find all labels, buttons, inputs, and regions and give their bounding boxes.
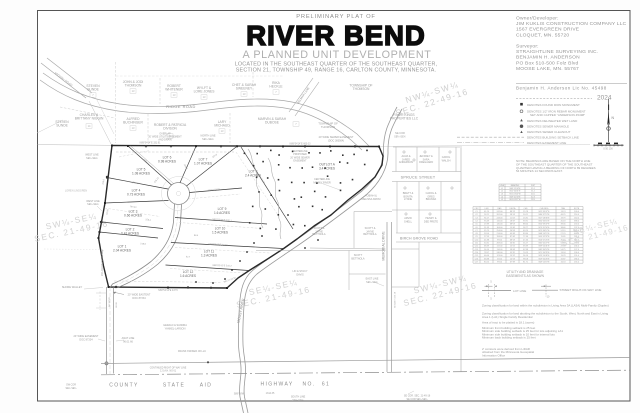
svg-text:MELISSA KROM: MELISSA KROM <box>362 198 381 201</box>
svg-text:2024: 2024 <box>597 95 612 102</box>
svg-text:0.73 ACRES: 0.73 ACRES <box>127 193 145 197</box>
svg-text:PROPOSED: PROPOSED <box>293 153 307 156</box>
svg-text:58°44': 58°44' <box>510 249 516 251</box>
svg-text:CENTERLINE: CENTERLINE <box>314 178 330 181</box>
svg-text:15°46': 15°46' <box>510 227 516 229</box>
svg-text:SET AND CAPPED "ANDERSON 45498: SET AND CAPPED "ANDERSON 45498" <box>530 113 585 117</box>
svg-text:N65°45'27"E: N65°45'27"E <box>539 243 550 245</box>
svg-text:DUBOSE: DUBOSE <box>265 120 280 124</box>
svg-text:Zoning classification for land: Zoning classification for land within th… <box>482 304 609 308</box>
svg-text:Area 1 (LA1) Single Family Res: Area 1 (LA1) Single Family Residential <box>482 315 533 319</box>
svg-text:78.97: 78.97 <box>484 252 489 254</box>
svg-text:N71°50'35"E: N71°50'35"E <box>539 252 550 254</box>
svg-text:61: 61 <box>322 382 330 388</box>
svg-text:1314.35: 1314.35 <box>266 392 275 395</box>
svg-text:TOBIAH &: TOBIAH & <box>365 195 377 198</box>
svg-text:PROPERTIES LLC: PROPERTIES LLC <box>390 116 419 120</box>
svg-text:BETTNOLA: BETTNOLA <box>312 233 326 236</box>
svg-text:44.0: 44.0 <box>531 194 535 196</box>
svg-text:51.2: 51.2 <box>531 191 535 193</box>
svg-text:SE¼-SE¼: SE¼-SE¼ <box>366 281 379 284</box>
svg-text:C6: C6 <box>475 227 477 229</box>
svg-text:N59°52'32"E: N59°52'32"E <box>539 236 550 238</box>
svg-text:66.88: 66.88 <box>484 258 489 260</box>
svg-text:56°45': 56°45' <box>510 243 516 245</box>
svg-text:0.66 ACRES: 0.66 ACRES <box>124 214 142 218</box>
svg-text:C2: C2 <box>475 214 477 216</box>
svg-text:160.0: 160.0 <box>574 217 579 219</box>
svg-text:LYNNE: LYNNE <box>404 198 412 201</box>
svg-text:DEE PRETE: DEE PRETE <box>424 220 439 223</box>
svg-text:14°23': 14°23' <box>510 258 516 260</box>
svg-text:99.00: 99.00 <box>497 239 502 241</box>
svg-text:39.56: 39.56 <box>561 224 566 226</box>
svg-text:0.41 ACRES: 0.41 ACRES <box>121 232 139 236</box>
svg-text:132.00: 132.00 <box>497 220 503 222</box>
svg-text:269.00: 269.00 <box>497 243 503 245</box>
svg-text:46.25: 46.25 <box>561 214 566 216</box>
svg-text:19°31': 19°31' <box>510 255 516 257</box>
svg-text:HECKLE: HECKLE <box>269 84 283 88</box>
svg-text:145.00: 145.00 <box>497 224 503 226</box>
svg-text:93.49: 93.49 <box>484 220 489 222</box>
svg-text:N22°33'47"E: N22°33'47"E <box>539 211 550 213</box>
svg-text:LOT 6: LOT 6 <box>163 156 172 160</box>
svg-text:18°47': 18°47' <box>510 220 516 222</box>
svg-text:SHELL: SHELL <box>404 220 413 223</box>
svg-text:49°48': 49°48' <box>510 233 516 235</box>
svg-text:NE COR: NE COR <box>395 132 405 135</box>
svg-text:24.21: 24.21 <box>484 214 489 216</box>
svg-text:68°53': 68°53' <box>510 224 516 226</box>
svg-text:62.3: 62.3 <box>531 196 535 198</box>
svg-text:C15: C15 <box>475 255 478 257</box>
svg-text:39.39: 39.39 <box>523 246 528 248</box>
svg-text:28.9: 28.9 <box>531 199 535 201</box>
svg-text:96.16: 96.16 <box>523 255 528 257</box>
svg-text:HIGHWAY: HIGHWAY <box>260 382 293 388</box>
svg-text:13.34: 13.34 <box>561 252 566 254</box>
svg-text:OUTLOT A: OUTLOT A <box>319 163 336 167</box>
svg-text:235.0: 235.0 <box>574 261 579 263</box>
svg-text:55.27: 55.27 <box>523 243 528 245</box>
svg-text:N89°54'14"E 331.91: N89°54'14"E 331.91 <box>140 143 161 145</box>
svg-text:N26°57'25"E: N26°57'25"E <box>539 239 550 241</box>
svg-text:N39°10'41"E: N39°10'41"E <box>539 246 550 248</box>
svg-text:13: 13 <box>404 188 406 190</box>
svg-text:1.07 ACRES: 1.07 ACRES <box>194 162 212 166</box>
svg-text:BUCHINGER: BUCHINGER <box>123 120 143 124</box>
svg-text:LIN & STACY: LIN & STACY <box>292 270 307 273</box>
svg-text:WALSH: WALSH <box>442 159 451 162</box>
svg-text:234.0: 234.0 <box>574 246 579 248</box>
svg-text:98.58: 98.58 <box>523 258 528 260</box>
svg-text:0 50 100: 0 50 100 <box>603 148 613 151</box>
svg-text:ANDERSON: ANDERSON <box>399 161 413 164</box>
svg-text:THOMSON: THOMSON <box>125 83 142 87</box>
svg-text:STATE: STATE <box>163 383 185 389</box>
svg-text:CHD: CHD <box>523 208 528 210</box>
svg-text:HENRY &: HENRY & <box>425 217 436 220</box>
svg-text:C14: C14 <box>475 252 478 254</box>
svg-text:(DOC 383564): (DOC 383564) <box>328 139 344 142</box>
svg-text:3.4 ACRES: 3.4 ACRES <box>319 167 335 171</box>
svg-text:70.23: 70.23 <box>523 252 528 254</box>
svg-text:N49°15'19"E: N49°15'19"E <box>539 261 550 263</box>
svg-text:S81°03'27"W: S81°03'27"W <box>509 199 520 201</box>
svg-text:L1: L1 <box>501 188 503 190</box>
svg-text:50.21: 50.21 <box>523 214 528 216</box>
svg-text:2.04 ACRES: 2.04 ACRES <box>113 249 131 253</box>
svg-text:LOT LINE: LOT LINE <box>513 289 526 293</box>
svg-text:N29°50'26"E: N29°50'26"E <box>539 258 550 260</box>
svg-text:1567 EVERGREEN DRIVE: 1567 EVERGREEN DRIVE <box>516 27 580 33</box>
svg-text:LOT 1: LOT 1 <box>118 245 127 249</box>
svg-text:DENOTES SEWER MANHOLE: DENOTES SEWER MANHOLE <box>527 124 569 128</box>
svg-text:13.74: 13.74 <box>561 211 566 213</box>
svg-text:ARVID: ARVID <box>404 217 412 220</box>
svg-text:58.77: 58.77 <box>523 227 528 229</box>
svg-text:LOT 11: LOT 11 <box>204 250 215 254</box>
svg-text:BETTNOLA: BETTNOLA <box>363 233 377 236</box>
svg-text:13: 13 <box>403 152 405 154</box>
svg-text:MOOSE LAKE, MN. 55767: MOOSE LAKE, MN. 55767 <box>516 66 579 72</box>
svg-text:SECTION 21, TOWNSHIP 49, R: SECTION 21, TOWNSHIP 49, RANGE 16, CARLT… <box>236 68 437 74</box>
svg-text:LOT 5: LOT 5 <box>137 168 146 172</box>
svg-text:C13: C13 <box>475 249 478 251</box>
svg-text:20' WIDE EASTENT: 20' WIDE EASTENT <box>128 294 151 297</box>
svg-text:13: 13 <box>451 188 453 190</box>
svg-text:L4: L4 <box>501 196 503 198</box>
svg-text:OVERLAP: OVERLAP <box>159 133 171 136</box>
svg-text:51.33: 51.33 <box>484 227 489 229</box>
svg-text:Minimum back building setback: Minimum back building setback is 25 feet <box>482 336 536 340</box>
svg-text:PO Box 510-500 Folz Blvd: PO Box 510-500 Folz Blvd <box>516 60 579 66</box>
svg-text:SCOTT &: SCOTT & <box>365 227 376 230</box>
svg-text:DENOTES BUILDING SETBACK LINE: DENOTES BUILDING SETBACK LINE <box>527 136 579 140</box>
svg-text:0.98 ACRES: 0.98 ACRES <box>158 160 176 164</box>
svg-text:54.75: 54.75 <box>561 249 566 251</box>
svg-text:SE COR SE¼-SE¼: SE COR SE¼-SE¼ <box>407 398 429 401</box>
svg-text:Information Office: Information Office <box>482 353 505 357</box>
svg-text:N09°41'33"E: N09°41'33"E <box>510 196 521 198</box>
svg-text:LORE JONES: LORE JONES <box>194 89 216 93</box>
svg-text:35.75: 35.75 <box>484 230 489 232</box>
svg-text:DENOTES FOUND IRON MONUMENT: DENOTES FOUND IRON MONUMENT <box>527 103 580 107</box>
svg-text:27.89: 27.89 <box>484 224 489 226</box>
svg-text:EASEMENT: EASEMENT <box>293 160 307 163</box>
svg-text:UTILITY AND DRAINAGE: UTILITY AND DRAINAGE <box>507 270 544 274</box>
svg-text:19.78: 19.78 <box>561 255 566 257</box>
svg-text:DIVISON: DIVISON <box>163 126 177 130</box>
svg-text:388.0: 388.0 <box>574 220 579 222</box>
svg-text:286.0: 286.0 <box>574 258 579 260</box>
svg-text:87°46': 87°46' <box>510 236 516 238</box>
svg-text:45.18: 45.18 <box>561 220 566 222</box>
svg-text:CAROL: CAROL <box>442 156 451 159</box>
svg-text:117.00: 117.00 <box>497 246 503 248</box>
svg-text:AID: AID <box>200 383 213 389</box>
svg-text:DOC 87334: DOC 87334 <box>79 338 93 341</box>
svg-text:S89°58'W: S89°58'W <box>234 393 245 396</box>
svg-text:SUNDE: SUNDE <box>56 123 68 127</box>
svg-text:LOT 7: LOT 7 <box>199 158 208 162</box>
svg-text:20' WIDE SEWER: 20' WIDE SEWER <box>290 156 310 159</box>
svg-text:53.00: 53.00 <box>497 258 502 260</box>
svg-text:RIDGE ROAD: RIDGE ROAD <box>166 104 196 109</box>
svg-text:15°21': 15°21' <box>510 246 516 248</box>
svg-text:N89°54'14"E 447.5: N89°54'14"E 447.5 <box>158 290 178 292</box>
svg-text:COUNTY: COUNTY <box>109 383 139 389</box>
svg-text:66.00: 66.00 <box>116 301 118 307</box>
svg-text:THOMSON: THOMSON <box>353 87 370 91</box>
svg-text:BRANDA: BRANDA <box>426 198 437 201</box>
svg-text:1.08 ACRES: 1.08 ACRES <box>132 172 150 176</box>
svg-text:Benjamin H. Anderson Lic No. 4: Benjamin H. Anderson Lic No. 45498 <box>516 86 607 91</box>
svg-text:LOT 2: LOT 2 <box>126 228 135 232</box>
svg-text:LINE: LINE <box>500 185 505 187</box>
svg-text:88°13': 88°13' <box>510 211 516 213</box>
svg-text:151.0: 151.0 <box>574 255 579 257</box>
svg-text:80.25: 80.25 <box>484 261 489 263</box>
svg-text:35.1: 35.1 <box>531 188 535 190</box>
svg-text:DENOTES SEWER CLEANOUT: DENOTES SEWER CLEANOUT <box>527 130 571 134</box>
svg-text:SE¼-SE¼: SE¼-SE¼ <box>87 203 100 206</box>
svg-text:81.71: 81.71 <box>523 261 528 263</box>
svg-text:Surveyor:: Surveyor: <box>516 44 539 50</box>
svg-text:L3: L3 <box>501 194 503 196</box>
svg-text:LOT 9: LOT 9 <box>218 207 227 211</box>
svg-text:SE¼-SE¼: SE¼-SE¼ <box>86 157 99 160</box>
svg-text:1.6 ACRES: 1.6 ACRES <box>214 211 230 215</box>
svg-text:SW COR: SW COR <box>66 384 76 387</box>
svg-text:SE COR. SEC. 21-49-16: SE COR. SEC. 21-49-16 <box>404 395 431 398</box>
svg-text:214.00: 214.00 <box>497 233 503 235</box>
svg-text:N72°36'12"E: N72°36'12"E <box>539 230 550 232</box>
svg-text:DOC 87334: DOC 87334 <box>132 297 146 300</box>
svg-text:123.00: 123.00 <box>497 255 503 257</box>
svg-text:WEST LINE: WEST LINE <box>85 154 99 157</box>
svg-text:ODEGAARD: ODEGAARD <box>419 161 434 164</box>
svg-text:ANAT LINE: ANAT LINE <box>122 337 135 340</box>
svg-text:LOT 10: LOT 10 <box>215 227 226 231</box>
svg-text:N82°30'18"E: N82°30'18"E <box>539 249 550 251</box>
svg-text:SE¼ SE¼: SE¼ SE¼ <box>65 387 77 390</box>
svg-text:93.50: 93.50 <box>484 233 489 235</box>
svg-text:N89°54'14"E 663.03: N89°54'14"E 663.03 <box>290 144 311 146</box>
svg-text:SCOTT: SCOTT <box>354 254 363 257</box>
svg-text:127.0: 127.0 <box>574 249 579 251</box>
svg-text:LOT 4: LOT 4 <box>132 189 141 193</box>
svg-text:YANKEL-LARSON: YANKEL-LARSON <box>165 327 186 330</box>
svg-text:BETTNOLA: BETTNOLA <box>351 257 365 260</box>
svg-text:N0°11'5"E: N0°11'5"E <box>109 297 111 307</box>
svg-text:27.99: 27.99 <box>484 236 489 238</box>
svg-text:CAROL &: CAROL & <box>426 192 437 195</box>
svg-text:68.39: 68.39 <box>484 246 489 248</box>
svg-text:96.01 66: 96.01 66 <box>123 340 133 343</box>
svg-text:25.81: 25.81 <box>523 217 528 219</box>
svg-text:BRETT &: BRETT & <box>403 192 414 195</box>
svg-text:STREET RIGHT-OF-WAY LINE: STREET RIGHT-OF-WAY LINE <box>560 288 602 292</box>
svg-text:SE¼-SE¼: SE¼-SE¼ <box>202 138 215 141</box>
svg-text:1.6 ACRES: 1.6 ACRES <box>180 274 196 278</box>
svg-text:C5: C5 <box>475 224 477 226</box>
svg-text:N50°39'47"E: N50°39'47"E <box>539 224 550 226</box>
svg-text:46.66: 46.66 <box>484 255 489 257</box>
svg-text:67.88: 67.88 <box>523 249 528 251</box>
svg-text:N68°14'15"E: N68°14'15"E <box>539 233 550 235</box>
svg-text:67°39': 67°39' <box>510 261 516 263</box>
svg-text:55°35': 55°35' <box>510 252 516 254</box>
svg-text:27.70: 27.70 <box>561 233 566 235</box>
svg-text:C9: C9 <box>475 236 477 238</box>
svg-text:SWEENEY: SWEENEY <box>236 86 253 90</box>
svg-text:SE¼-SE¼: SE¼-SE¼ <box>292 399 304 402</box>
svg-text:RIVER BEND: RIVER BEND <box>246 20 426 51</box>
svg-text:C10: C10 <box>475 239 478 241</box>
svg-text:C16: C16 <box>475 258 478 260</box>
svg-text:N80°37'13"E: N80°37'13"E <box>539 214 550 216</box>
svg-text:C7: C7 <box>475 230 477 232</box>
svg-text:WHITENER: WHITENER <box>165 87 183 91</box>
svg-text:LOT 3: LOT 3 <box>129 210 138 214</box>
svg-text:DENOTES EASEMENT LINE: DENOTES EASEMENT LINE <box>527 141 566 145</box>
svg-text:20' WIDE UTILITY EASEMENT: 20' WIDE UTILITY EASEMENT <box>148 136 182 139</box>
svg-text:13: 13 <box>413 160 415 162</box>
svg-text:11°24': 11°24' <box>510 217 516 219</box>
svg-text:NORTH LINE: NORTH LINE <box>200 135 215 138</box>
svg-text:61.29: 61.29 <box>484 211 489 213</box>
svg-text:16.53: 16.53 <box>561 261 566 263</box>
svg-text:240.00: 240.00 <box>497 252 503 254</box>
svg-text:BENJAMIN H. ANDERSON: BENJAMIN H. ANDERSON <box>516 55 580 61</box>
svg-text:63.29: 63.29 <box>523 230 528 232</box>
svg-text:EASEMENTS AS SHOWN: EASEMENTS AS SHOWN <box>506 274 544 278</box>
svg-text:134.0: 134.0 <box>574 252 579 254</box>
svg-text:54 MINUTES 14 SECONDS EAST.: 54 MINUTES 14 SECONDS EAST. <box>516 169 563 173</box>
svg-text:C12: C12 <box>475 246 478 248</box>
svg-text:2.4 ACRES: 2.4 ACRES <box>245 174 261 178</box>
svg-text:88.64: 88.64 <box>523 224 528 226</box>
svg-text:58°14': 58°14' <box>510 214 516 216</box>
svg-text:94.17: 94.17 <box>484 217 489 219</box>
svg-text:N23°10'46"E: N23°10'46"E <box>539 255 550 257</box>
svg-text:LOT 12: LOT 12 <box>183 270 194 274</box>
svg-text:CLOQUET, MN. 55720: CLOQUET, MN. 55720 <box>516 32 569 38</box>
svg-text:262.00: 262.00 <box>497 214 503 216</box>
svg-text:32.87: 32.87 <box>561 258 566 260</box>
svg-text:ALMA &: ALMA & <box>401 155 410 158</box>
svg-text:A PLANNED UNIT DEVELOPMENT: A PLANNED UNIT DEVELOPMENT <box>243 49 432 61</box>
svg-text:13: 13 <box>427 188 429 190</box>
svg-text:CHD BRG: CHD BRG <box>540 208 549 210</box>
svg-text:C11: C11 <box>475 243 478 245</box>
svg-text:AND DRAIN: AND DRAIN <box>158 139 171 142</box>
svg-text:164.00: 164.00 <box>497 227 503 229</box>
svg-text:77.46: 77.46 <box>523 236 528 238</box>
svg-text:NOTE: NOTE <box>574 208 580 210</box>
svg-text:BRITTANY NIGGIN: BRITTANY NIGGIN <box>75 116 104 120</box>
svg-text:EAST LINE: EAST LINE <box>366 278 379 281</box>
svg-text:STRAIGHTLINE SURVEYING INC.: STRAIGHTLINE SURVEYING INC. <box>516 49 598 55</box>
svg-text:DAVIS: DAVIS <box>296 273 304 276</box>
svg-text:BIRCH GROVE ROAD: BIRCH GROVE ROAD <box>400 237 438 241</box>
svg-text:C3: C3 <box>475 217 477 219</box>
svg-text:GERALD & SANDRA: GERALD & SANDRA <box>163 324 187 327</box>
svg-text:38.46: 38.46 <box>561 227 566 229</box>
svg-text:SPRUCE STREET: SPRUCE STREET <box>401 176 436 180</box>
svg-text:198.00: 198.00 <box>497 236 503 238</box>
svg-text:JEFFREY &: JEFFREY & <box>419 155 433 158</box>
svg-text:N27°28'36"E: N27°28'36"E <box>539 217 550 219</box>
svg-text:THOMSON: THOMSON <box>321 125 335 129</box>
svg-text:C17: C17 <box>475 261 478 263</box>
svg-text:LOCATED IN THE SOUTHEAST Q: LOCATED IN THE SOUTHEAST QUARTER OF THE … <box>235 62 438 68</box>
svg-text:13: 13 <box>405 214 407 216</box>
svg-text:Owner/Developer:: Owner/Developer: <box>516 16 559 22</box>
svg-text:C4: C4 <box>475 220 477 222</box>
svg-text:NO.: NO. <box>302 382 315 388</box>
svg-text:SE¼-SE¼: SE¼-SE¼ <box>394 135 407 138</box>
svg-text:SUNDE: SUNDE <box>87 87 99 91</box>
svg-text:20' WIDE EASEMENT: 20' WIDE EASEMENT <box>74 335 99 338</box>
svg-text:N34°33'16"E: N34°33'16"E <box>539 220 550 222</box>
svg-text:SCOTT &: SCOTT & <box>314 227 325 230</box>
svg-text:56.10: 56.10 <box>484 249 489 251</box>
svg-text:1.3 ACRES: 1.3 ACRES <box>201 254 217 258</box>
svg-text:52.19: 52.19 <box>561 230 566 232</box>
svg-text:L2: L2 <box>501 191 503 193</box>
svg-text:99.00: 99.00 <box>497 261 502 263</box>
svg-text:68°13': 68°13' <box>510 239 516 241</box>
svg-text:114.00: 114.00 <box>497 249 503 251</box>
svg-text:MOSSY RIVER: MOSSY RIVER <box>313 181 331 184</box>
svg-text:253.0: 253.0 <box>574 224 579 226</box>
svg-text:L5: L5 <box>501 199 503 201</box>
svg-text:47.46: 47.46 <box>523 239 528 241</box>
svg-text:MICHAUD: MICHAUD <box>214 123 230 127</box>
svg-text:19.79: 19.79 <box>561 217 566 219</box>
svg-text:209.0: 209.0 <box>574 211 579 213</box>
svg-text:LOREN LINDGREN: LOREN LINDGREN <box>65 190 87 193</box>
svg-text:93.91: 93.91 <box>523 220 528 222</box>
svg-text:1.5 ACRES: 1.5 ACRES <box>212 231 228 235</box>
svg-text:S55°24'10"W: S55°24'10"W <box>509 194 520 196</box>
svg-text:242.00: 242.00 <box>497 211 503 213</box>
svg-text:41.88: 41.88 <box>484 239 489 241</box>
svg-text:29.78: 29.78 <box>523 211 528 213</box>
svg-text:FRANK KWIKER JR LLC: FRANK KWIKER JR LLC <box>178 350 206 353</box>
svg-text:20' WIDE SEWER EASEMENT: 20' WIDE SEWER EASEMENT <box>319 136 354 139</box>
svg-text:CENTERLINE: CENTERLINE <box>292 150 308 153</box>
svg-text:13: 13 <box>424 152 426 154</box>
svg-text:243.00: 243.00 <box>497 217 503 219</box>
svg-text:N73°31'56"E: N73°31'56"E <box>539 227 550 229</box>
svg-text:LEN: LEN <box>485 208 489 210</box>
svg-text:SOUTH LINE: SOUTH LINE <box>291 396 306 399</box>
svg-text:C8: C8 <box>475 233 477 235</box>
svg-text:83.84: 83.84 <box>523 233 528 235</box>
svg-text:30.31: 30.31 <box>484 243 489 245</box>
svg-text:C1: C1 <box>475 211 477 213</box>
svg-text:26°58': 26°58' <box>510 230 516 232</box>
svg-text:JIM KUKLIS CONSTRUCTION COMPAN: JIM KUKLIS CONSTRUCTION COMPANY LLC <box>516 21 627 27</box>
svg-text:Area of tract to be platted is: Area of tract to be platted is 18.1 (acr… <box>482 321 534 325</box>
svg-text:254.00: 254.00 <box>497 230 503 232</box>
svg-text:N12°50'01"E: N12°50'01"E <box>510 191 521 193</box>
svg-text:13: 13 <box>449 152 451 154</box>
